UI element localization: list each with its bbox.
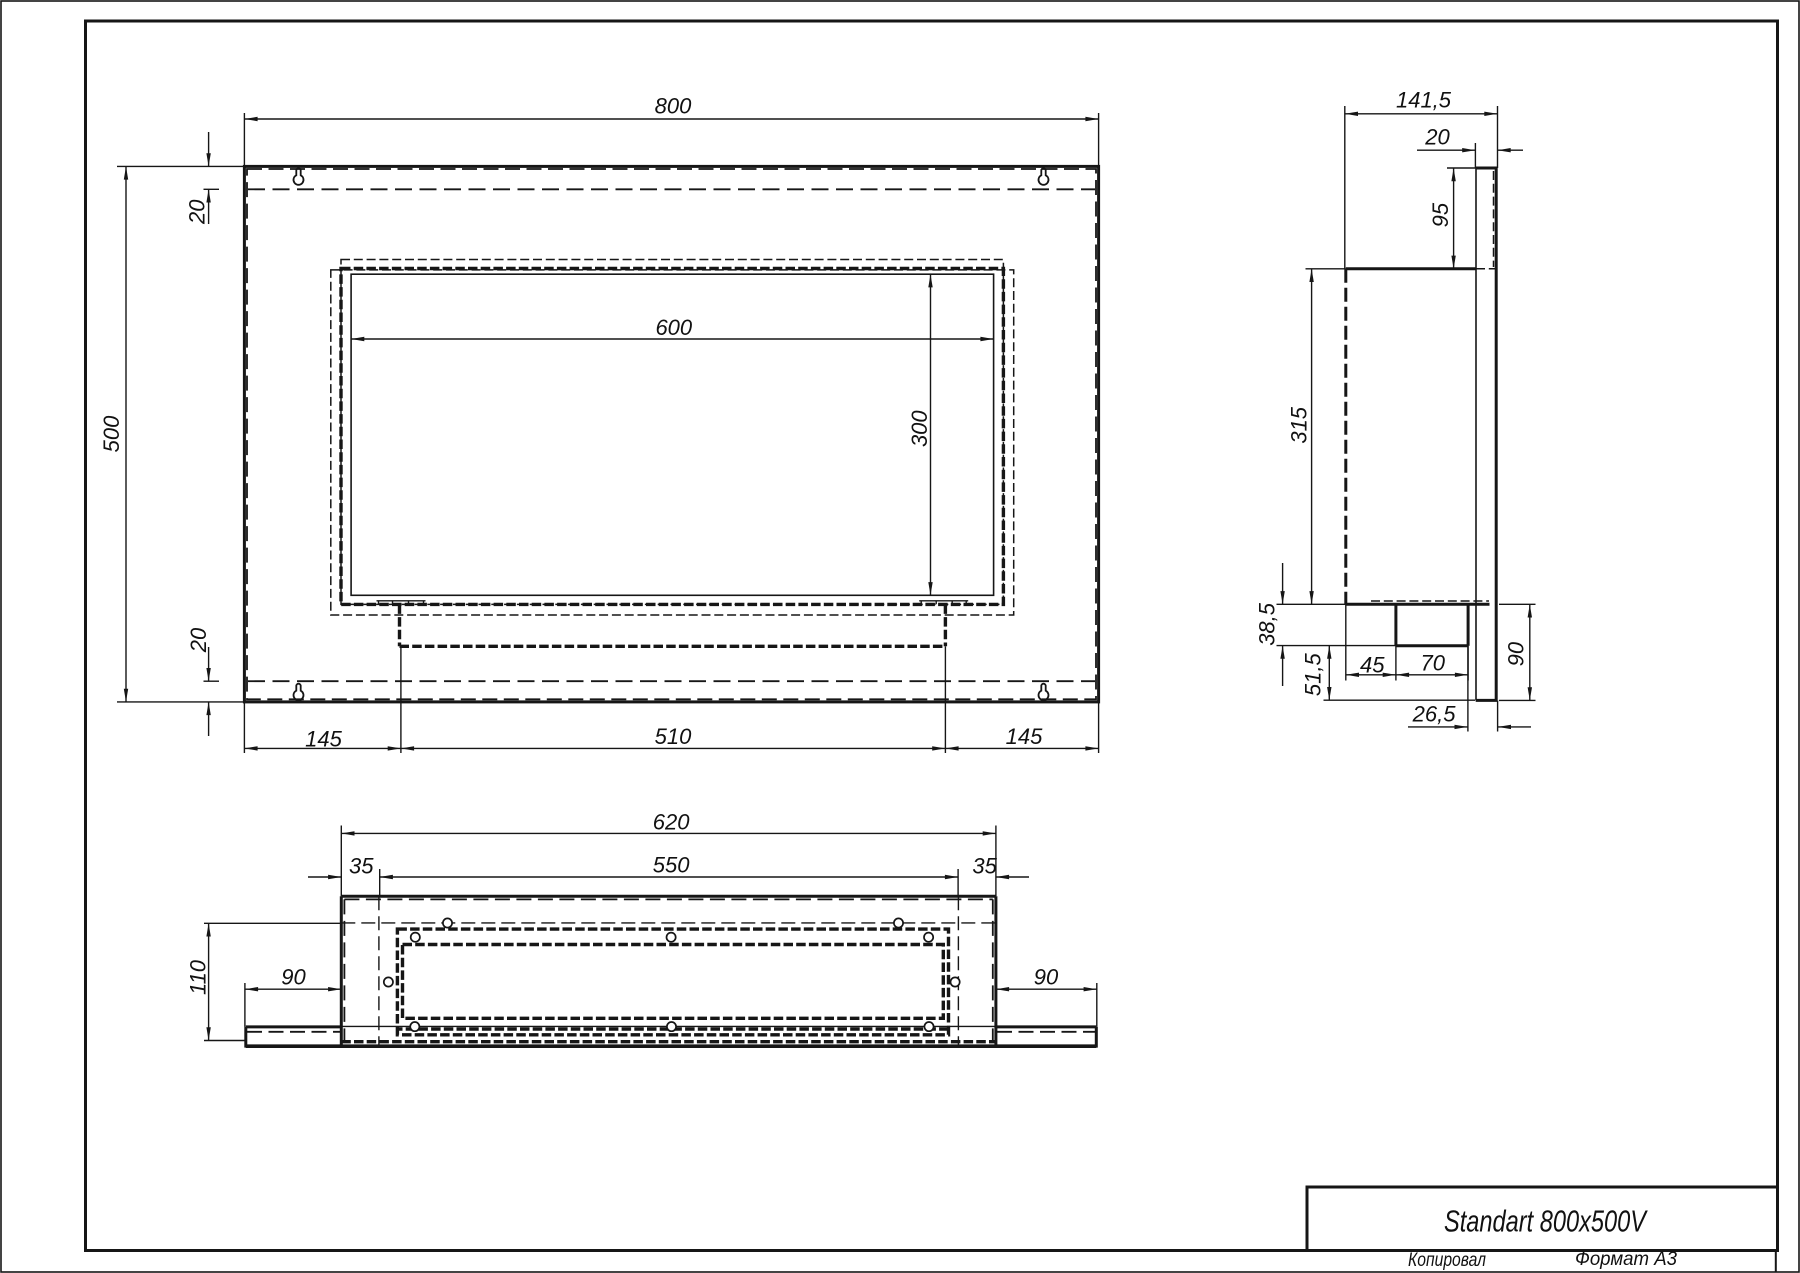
svg-text:51,5: 51,5	[1300, 653, 1325, 697]
svg-text:110: 110	[185, 959, 210, 995]
svg-text:600: 600	[655, 315, 692, 340]
svg-text:141,5: 141,5	[1396, 87, 1452, 112]
svg-text:620: 620	[653, 810, 690, 835]
svg-text:45: 45	[1360, 652, 1385, 677]
svg-text:35: 35	[972, 854, 997, 879]
svg-text:70: 70	[1421, 651, 1446, 676]
svg-text:90: 90	[281, 965, 306, 990]
svg-text:Формат А3: Формат А3	[1575, 1249, 1677, 1270]
svg-text:300: 300	[907, 410, 932, 447]
svg-text:20: 20	[1424, 125, 1450, 150]
svg-text:90: 90	[1503, 641, 1528, 666]
svg-text:Standart 800x500V: Standart 800x500V	[1444, 1204, 1649, 1239]
svg-text:550: 550	[653, 853, 690, 878]
svg-text:500: 500	[99, 415, 124, 452]
svg-text:145: 145	[1006, 724, 1043, 749]
svg-text:90: 90	[1034, 965, 1059, 990]
svg-text:26,5: 26,5	[1412, 701, 1457, 726]
svg-text:20: 20	[186, 627, 211, 653]
svg-text:35: 35	[349, 854, 374, 879]
svg-text:Копировал: Копировал	[1408, 1250, 1486, 1271]
svg-text:315: 315	[1286, 406, 1311, 443]
svg-text:38,5: 38,5	[1254, 602, 1279, 646]
svg-text:95: 95	[1428, 202, 1453, 227]
svg-text:20: 20	[185, 199, 210, 225]
svg-text:800: 800	[655, 93, 692, 118]
svg-text:510: 510	[655, 724, 692, 749]
svg-text:145: 145	[305, 727, 342, 752]
